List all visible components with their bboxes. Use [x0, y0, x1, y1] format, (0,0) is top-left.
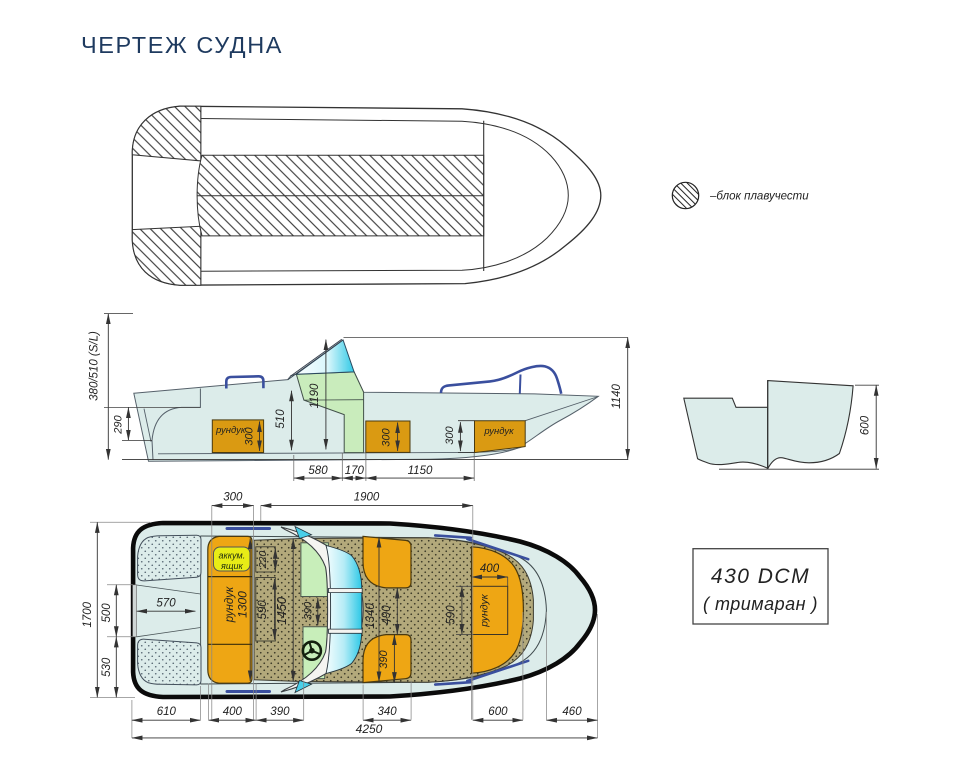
svg-text:400: 400 [223, 706, 243, 718]
svg-text:1340: 1340 [365, 603, 377, 629]
svg-text:1190: 1190 [309, 383, 321, 408]
svg-text:220: 220 [257, 551, 269, 570]
svg-text:590: 590 [446, 605, 458, 625]
svg-text:610: 610 [157, 706, 177, 718]
svg-text:300: 300 [223, 492, 243, 504]
svg-text:аккум.: аккум. [219, 551, 246, 561]
svg-text:300: 300 [444, 425, 456, 444]
svg-text:590: 590 [257, 600, 269, 620]
svg-text:460: 460 [562, 706, 582, 718]
svg-text:510: 510 [275, 409, 287, 429]
svg-text:–блок плавучести: –блок плавучести [709, 191, 809, 203]
svg-text:рундук: рундук [224, 586, 236, 623]
svg-text:530: 530 [101, 657, 113, 677]
svg-text:430 DCM: 430 DCM [711, 565, 810, 588]
svg-text:1900: 1900 [354, 492, 380, 504]
svg-text:300: 300 [244, 426, 256, 445]
svg-text:170: 170 [345, 465, 365, 477]
svg-text:1300: 1300 [236, 591, 250, 618]
svg-text:390: 390 [303, 601, 315, 620]
svg-text:4250: 4250 [356, 722, 383, 736]
svg-text:340: 340 [378, 706, 398, 718]
svg-text:390: 390 [378, 649, 390, 668]
svg-text:570: 570 [156, 598, 176, 610]
svg-text:рундук: рундук [215, 425, 246, 436]
svg-text:390: 390 [270, 706, 290, 718]
svg-text:600: 600 [488, 706, 508, 718]
svg-text:1450: 1450 [275, 597, 289, 625]
svg-text:( тримаран ): ( тримаран ) [703, 594, 818, 614]
svg-text:490: 490 [381, 605, 393, 625]
svg-text:380/510 (S/L): 380/510 (S/L) [89, 331, 101, 401]
svg-text:ящик: ящик [220, 561, 243, 571]
svg-text:1700: 1700 [82, 601, 94, 627]
svg-text:500: 500 [101, 603, 113, 623]
svg-text:рундук: рундук [479, 593, 491, 627]
svg-text:600: 600 [860, 415, 872, 435]
svg-text:1150: 1150 [408, 465, 433, 477]
svg-text:рундук: рундук [483, 426, 514, 437]
svg-text:300: 300 [381, 427, 393, 446]
svg-text:400: 400 [480, 563, 500, 575]
svg-text:1140: 1140 [611, 384, 623, 409]
svg-text:290: 290 [113, 414, 125, 434]
svg-text:580: 580 [308, 465, 328, 477]
